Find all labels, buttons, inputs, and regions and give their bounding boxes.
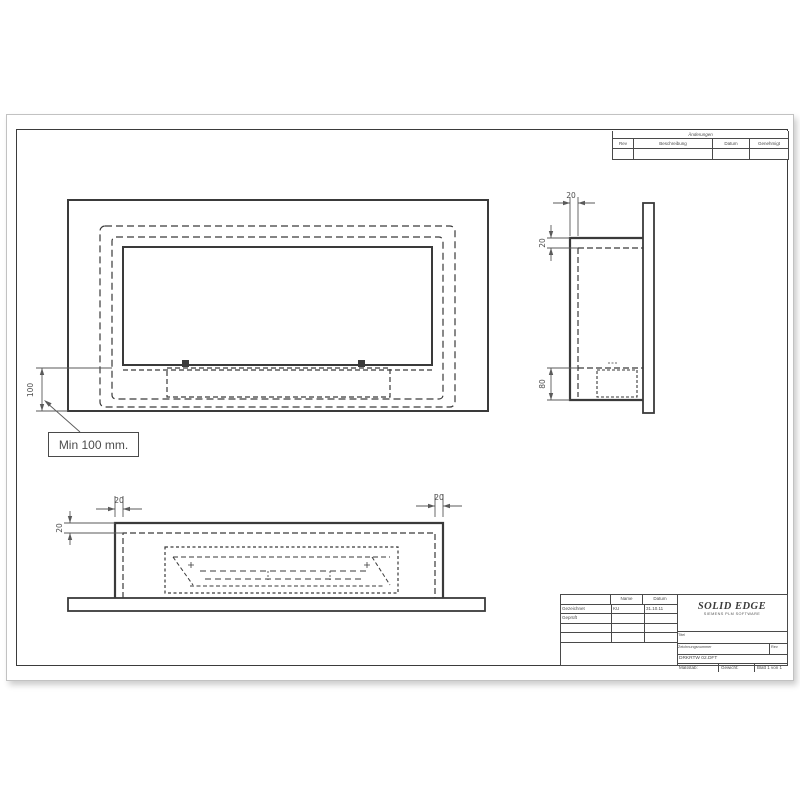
rev-col-header: Rev: [613, 139, 633, 148]
revision-table: Änderungen Rev Beschreibung Datum Genehm…: [612, 131, 789, 160]
rev-cell: Rev: [769, 644, 787, 654]
filename-row: DRKRTW 02.DFT: [677, 655, 787, 664]
photo-background: Änderungen Rev Beschreibung Datum Genehm…: [0, 0, 800, 800]
datum-col-header: Datum: [642, 595, 677, 604]
beschreibung-col-header: Beschreibung: [633, 139, 712, 148]
sheet-label: Blatt 1 von 1: [754, 664, 787, 672]
drawing-number-label: Zeichnungsnummer: [678, 645, 712, 649]
approval-table: Name Datum Gezeichnet KU 31.10.11 Geprüf…: [561, 595, 678, 665]
titel-label: Titel: [678, 633, 685, 637]
drawing-number-row: Zeichnungsnummer Rev: [677, 644, 787, 655]
titel-row: Titel: [677, 632, 787, 644]
approval-row-geprueft: Geprüft: [561, 614, 677, 624]
title-block-right: SOLID EDGE SIEMENS PLM SOFTWARE Titel Ze…: [677, 595, 787, 665]
rev-label: Rev: [771, 645, 778, 649]
revision-table-empty-row: [613, 148, 788, 159]
datum-col-header: Datum: [712, 139, 749, 148]
scale-label: Maßstab:: [677, 664, 718, 672]
approval-row-gezeichnet: Gezeichnet KU 31.10.11: [561, 605, 677, 615]
brand-name: SOLID EDGE: [677, 601, 787, 612]
footer-row: Maßstab: Gewicht: Blatt 1 von 1: [677, 664, 787, 672]
brand-subtitle: SIEMENS PLM SOFTWARE: [677, 612, 787, 616]
approval-header-row: Name Datum: [561, 595, 677, 605]
min-distance-callout: Min 100 mm.: [48, 432, 139, 457]
title-block: Name Datum Gezeichnet KU 31.10.11 Geprüf…: [560, 594, 788, 666]
drawing-frame: [16, 129, 788, 666]
revision-table-header: Rev Beschreibung Datum Genehmigt: [613, 138, 788, 148]
genehmigt-col-header: Genehmigt: [749, 139, 788, 148]
name-col-header: Name: [610, 595, 642, 604]
solid-edge-logo: SOLID EDGE SIEMENS PLM SOFTWARE: [677, 601, 787, 632]
weight-label: Gewicht:: [718, 664, 754, 672]
revision-table-title: Änderungen: [613, 131, 788, 138]
